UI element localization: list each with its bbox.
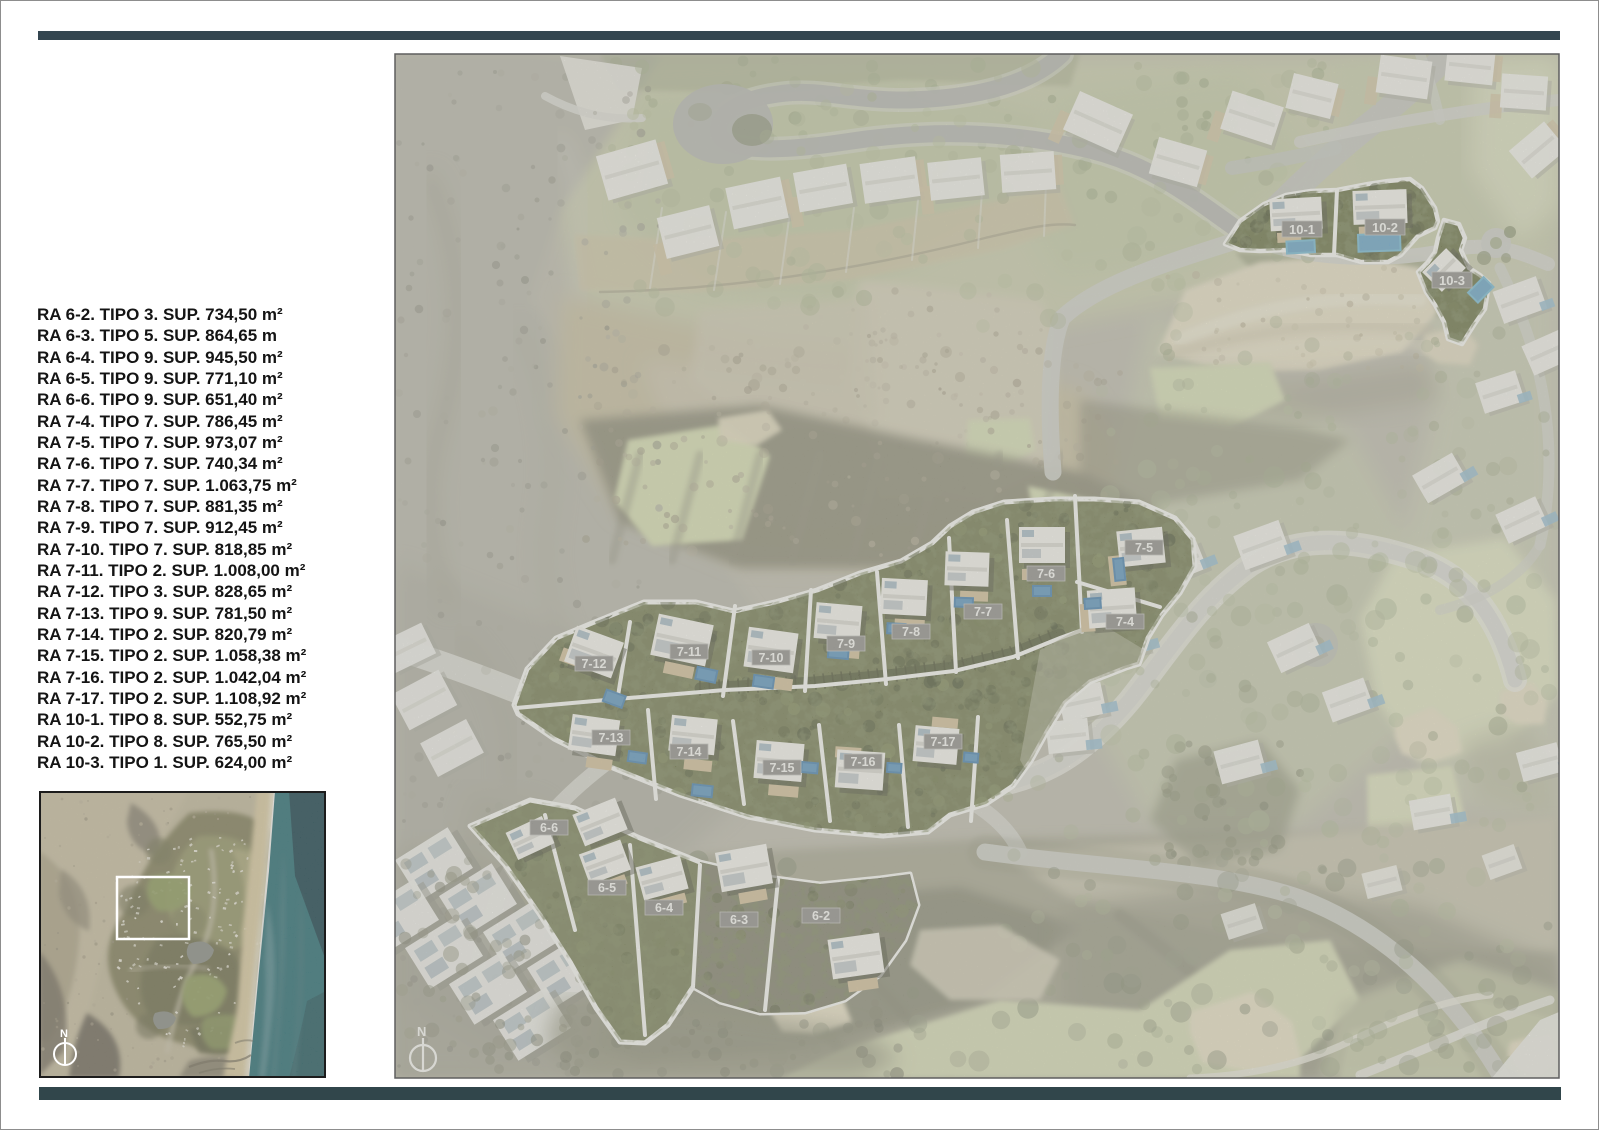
svg-text:N: N: [60, 1028, 68, 1040]
